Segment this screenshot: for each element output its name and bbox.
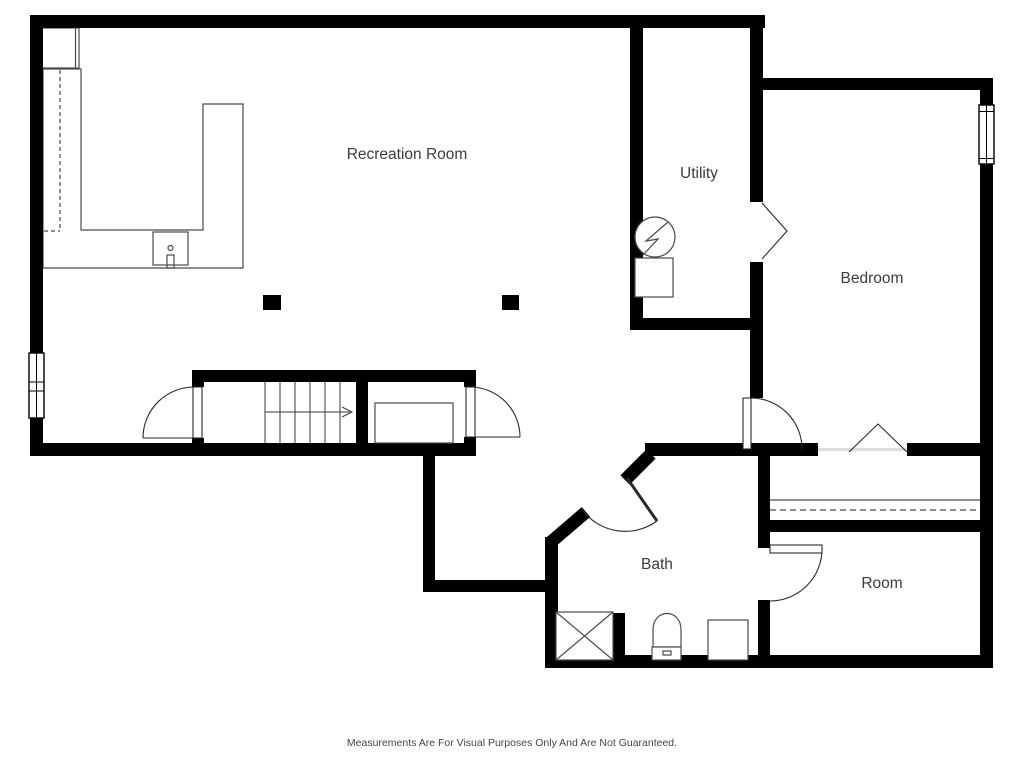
label-recreation-room: Recreation Room <box>347 146 468 163</box>
floor-plan-drawing: Recreation Room Utility Bedroom Bath Roo… <box>0 0 1024 768</box>
door-stairs-left <box>143 387 202 438</box>
wall-stair-middle <box>356 370 368 456</box>
wall-right-above-window <box>980 78 993 105</box>
bar-sink <box>153 232 188 268</box>
wall-closet-bottom-room-top <box>758 520 993 532</box>
window-left <box>29 353 44 418</box>
wall-bedroom-bottom-right <box>907 443 993 456</box>
door-leaf <box>193 387 202 438</box>
door-leaf <box>743 398 751 449</box>
counter-overhang-dashed-line <box>44 70 60 231</box>
toilet-tank <box>652 647 681 660</box>
door-leaf <box>770 545 822 553</box>
wall-stair-right-upper <box>464 370 476 387</box>
vanity <box>708 620 748 660</box>
support-post-right <box>502 295 519 310</box>
label-bath: Bath <box>641 556 673 573</box>
wall-bath-diagonal-lower <box>551 512 586 542</box>
door-understair-closet <box>466 387 520 437</box>
label-utility: Utility <box>680 165 718 182</box>
bedroom-closet <box>770 500 980 510</box>
wall-corridor-left <box>423 443 435 592</box>
wall-corridor-bottom <box>423 580 558 592</box>
wall-shower-stub <box>613 613 625 660</box>
wall-utility-right-upper <box>750 15 763 202</box>
door-leaf <box>627 478 657 521</box>
support-post-left <box>263 295 281 310</box>
label-bedroom: Bedroom <box>841 270 904 287</box>
wall-stair-left-lower <box>192 438 204 456</box>
door-leaf <box>466 387 475 437</box>
wall-top <box>30 15 765 28</box>
toilet <box>652 614 681 661</box>
bath-fixtures <box>556 612 748 660</box>
doors <box>143 203 907 601</box>
wall-bedroom-top <box>750 78 993 90</box>
wall-bath-diagonal-upper <box>625 454 651 480</box>
water-heater <box>635 217 675 257</box>
window-bedroom-right <box>979 105 994 164</box>
interior-walls <box>192 15 993 668</box>
shower <box>556 612 613 660</box>
door-utility-bifold <box>762 203 787 259</box>
wall-bedroom-left <box>750 262 763 398</box>
wall-stair-top <box>192 370 475 382</box>
exterior-walls <box>30 15 993 668</box>
wall-hall-room-lower <box>758 600 770 668</box>
wall-utility-bottom <box>630 318 752 330</box>
understair-storage-shelf <box>375 403 453 443</box>
wall-left-upper <box>30 15 43 353</box>
door-bath <box>583 478 657 531</box>
wall-stair-left-upper <box>192 370 204 387</box>
toilet-bowl <box>653 614 681 648</box>
counter-return-cabinet <box>40 28 79 68</box>
wall-right-below-window <box>980 164 993 668</box>
disclaimer-text: Measurements Are For Visual Purposes Onl… <box>347 737 677 749</box>
door-bedroom <box>743 398 802 449</box>
door-bedroom-closet-bifold <box>818 424 907 452</box>
wall-bath-top-bedroom-bottom <box>645 443 818 456</box>
counter-outline <box>43 69 243 268</box>
wall-recroom-bottom <box>30 443 475 456</box>
wet-bar-counter <box>40 28 243 268</box>
sink-basin <box>153 232 188 265</box>
label-room: Room <box>861 575 902 592</box>
door-room <box>770 545 822 601</box>
floor-plan-page: Recreation Room Utility Bedroom Bath Roo… <box>0 0 1024 768</box>
wall-stair-right-lower <box>464 437 476 456</box>
furnace <box>635 258 673 297</box>
wall-hall-closet-upper <box>758 443 770 548</box>
